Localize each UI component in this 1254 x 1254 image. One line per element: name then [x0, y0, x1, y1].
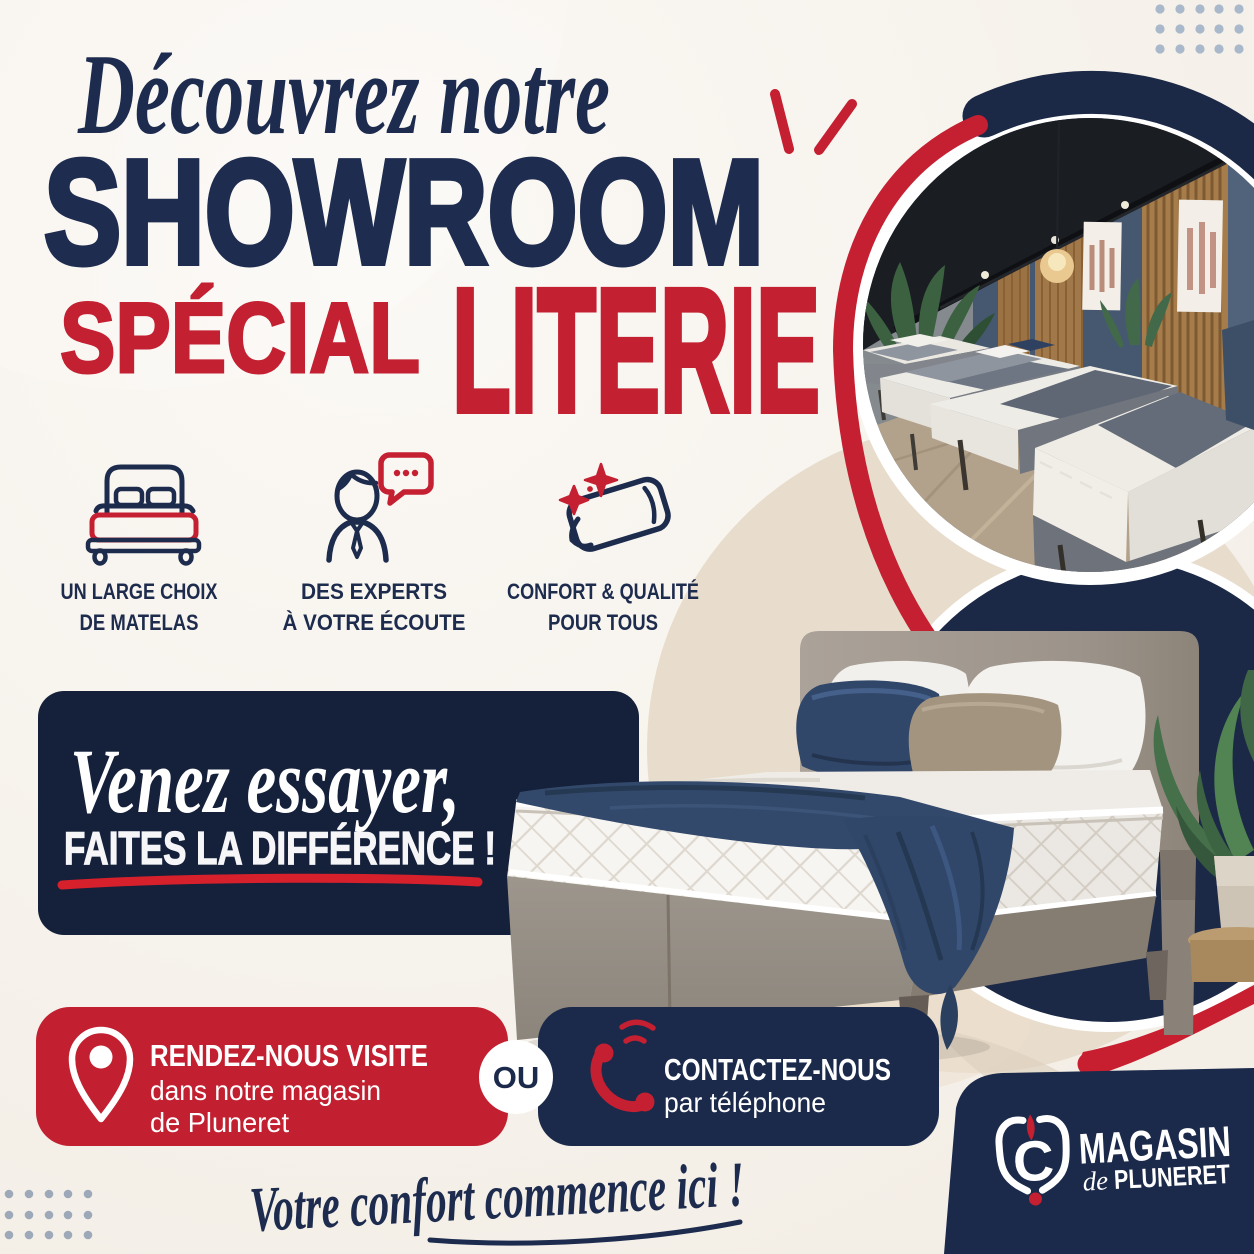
svg-text:par téléphone: par téléphone: [664, 1087, 826, 1118]
svg-text:LITERIE: LITERIE: [452, 253, 820, 449]
svg-text:CONTACTEZ-NOUS: CONTACTEZ-NOUS: [664, 1052, 891, 1087]
svg-text:POUR TOUS: POUR TOUS: [548, 610, 658, 635]
svg-text:OU: OU: [493, 1060, 540, 1095]
svg-text:UN LARGE CHOIX: UN LARGE CHOIX: [61, 579, 218, 604]
svg-text:de Pluneret: de Pluneret: [150, 1107, 289, 1138]
svg-text:RENDEZ-NOUS VISITE: RENDEZ-NOUS VISITE: [150, 1038, 428, 1073]
svg-text:CONFORT & QUALITÉ: CONFORT & QUALITÉ: [507, 579, 699, 604]
svg-text:DES EXPERTS: DES EXPERTS: [301, 579, 447, 604]
svg-text:dans notre magasin: dans notre magasin: [150, 1075, 381, 1106]
svg-text:SPÉCIAL: SPÉCIAL: [60, 282, 420, 393]
svg-text:À VOTRE ÉCOUTE: À VOTRE ÉCOUTE: [283, 610, 466, 635]
svg-text:Venez essayer,: Venez essayer,: [70, 730, 460, 832]
svg-text:C: C: [1011, 1129, 1055, 1194]
svg-text:DE MATELAS: DE MATELAS: [80, 610, 199, 635]
svg-text:FAITES LA DIFFÉRENCE !: FAITES LA DIFFÉRENCE !: [64, 822, 496, 874]
